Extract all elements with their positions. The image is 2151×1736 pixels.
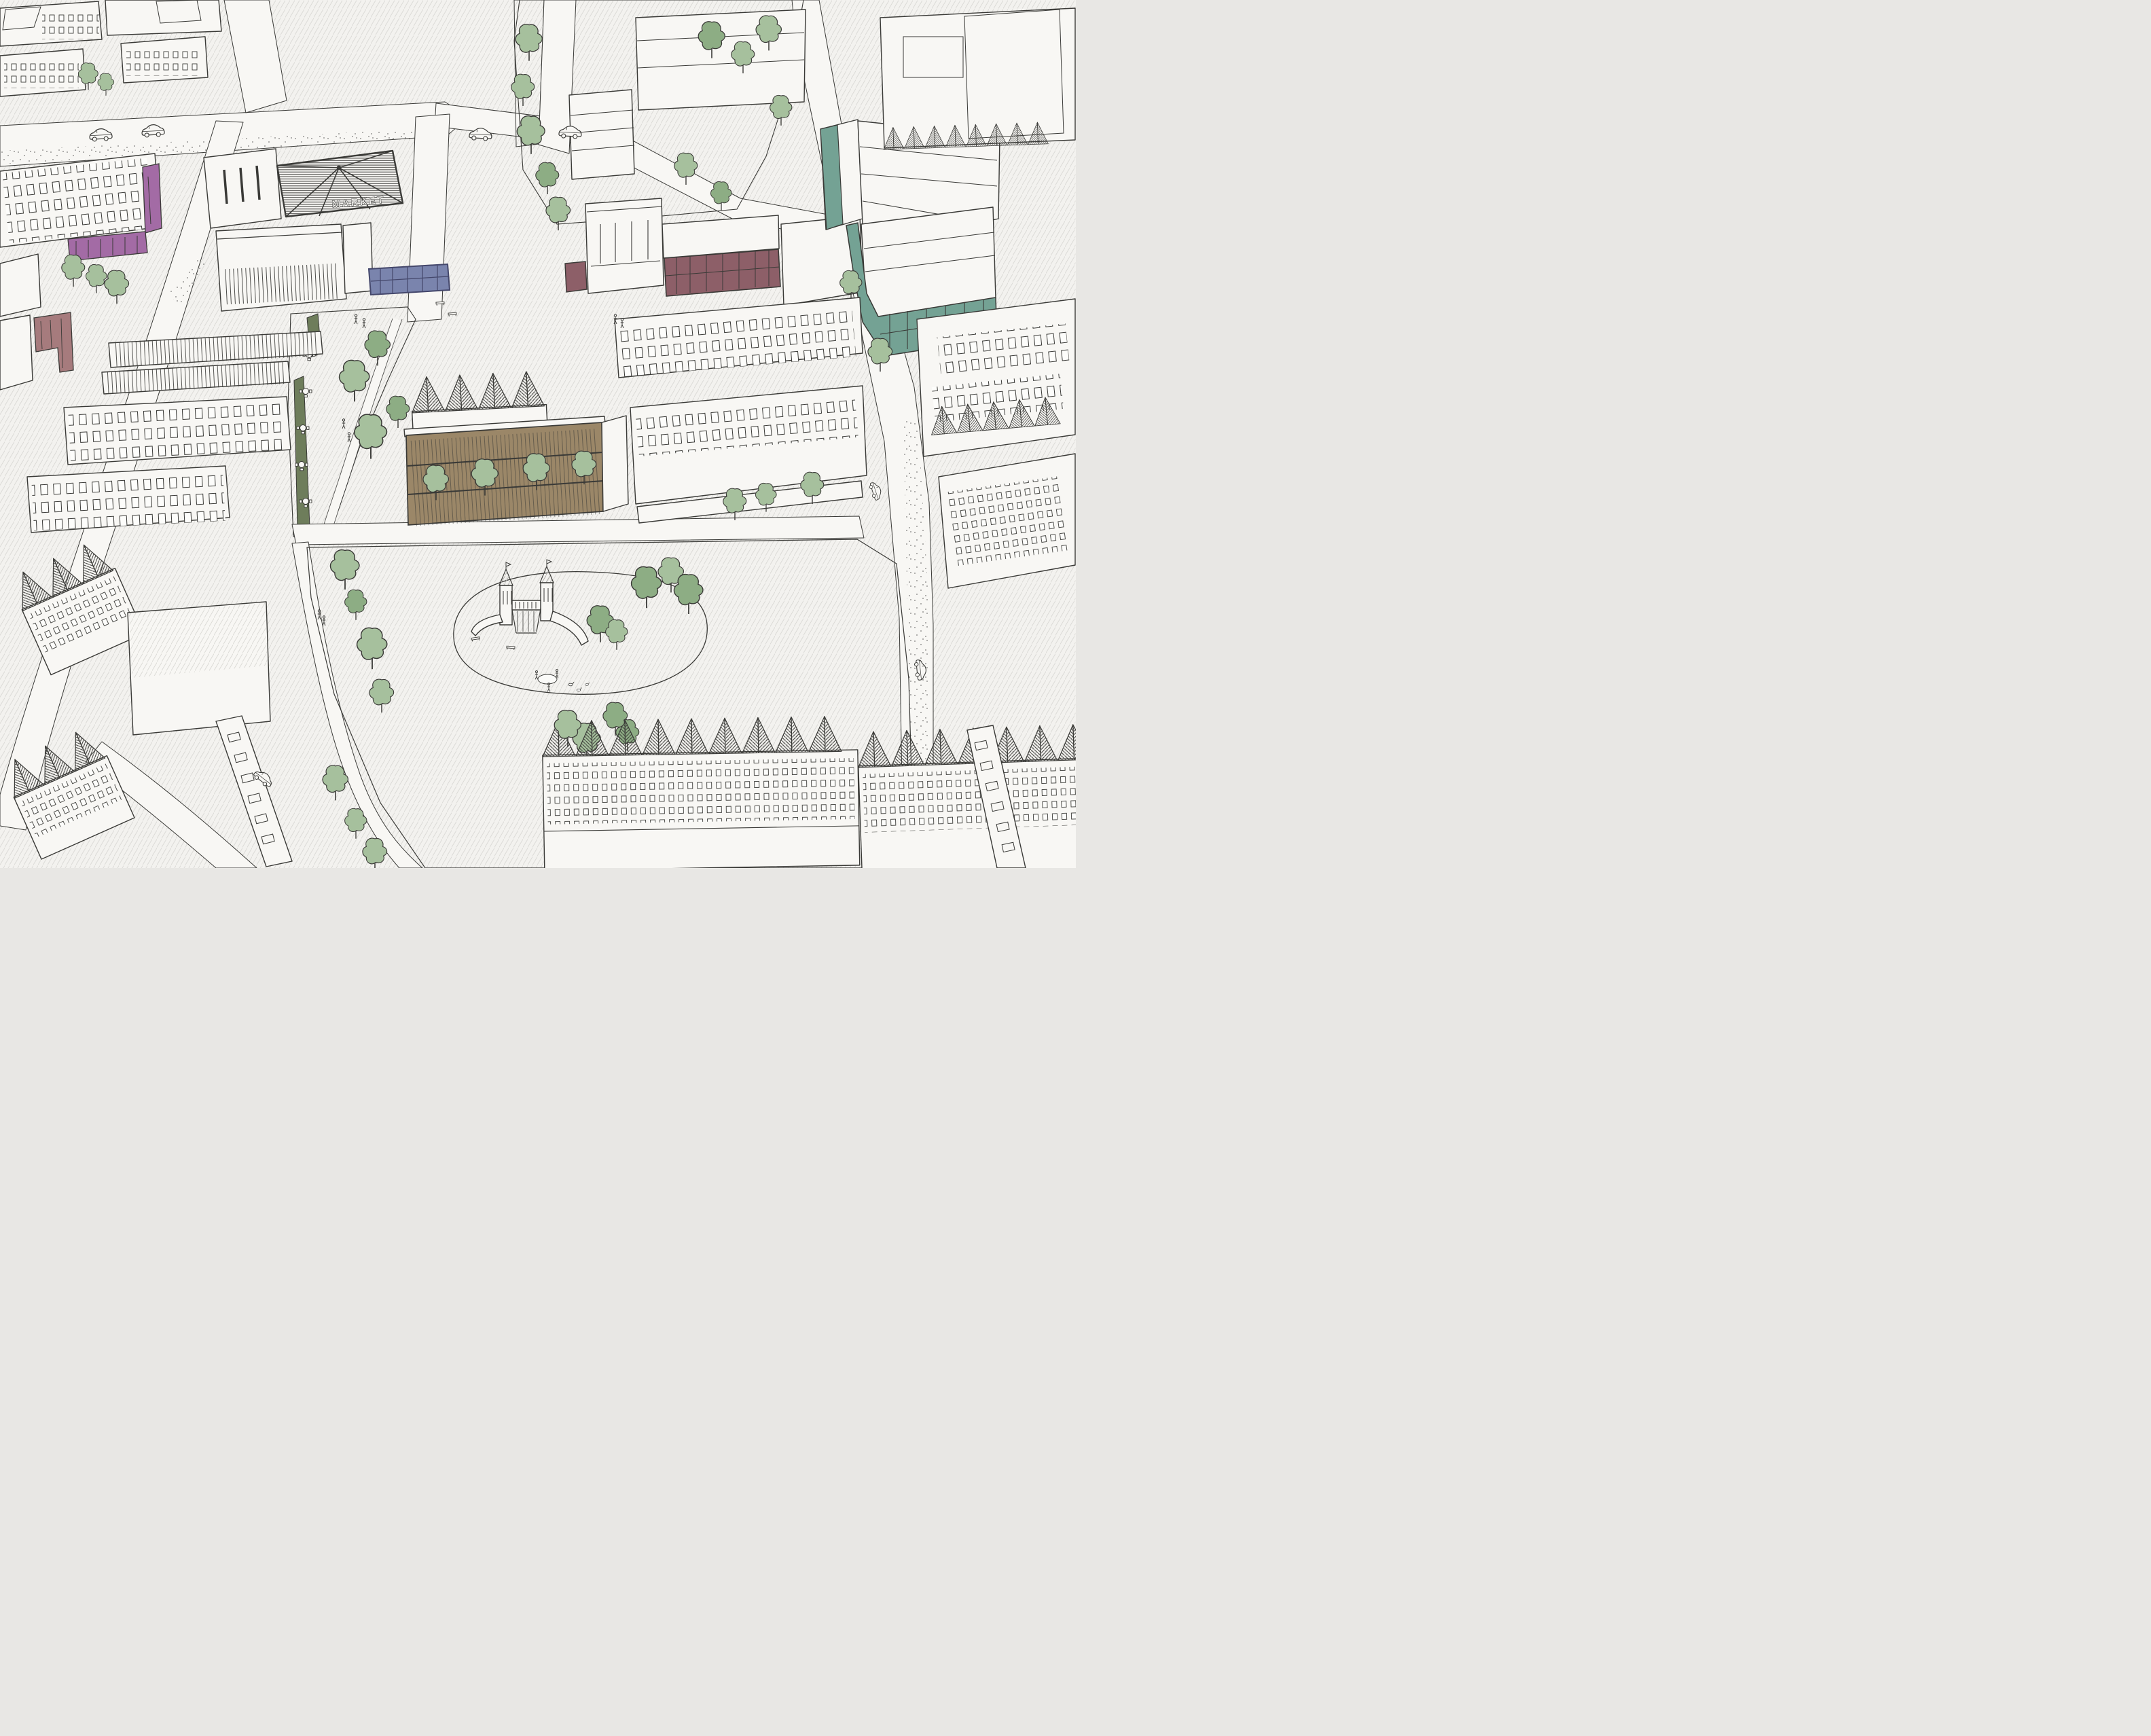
purple-arm-vertical: [143, 164, 162, 233]
market-pavilion: [216, 224, 346, 311]
white-gable-front: [585, 198, 664, 293]
sketch-canvas: MARKET: [0, 0, 1076, 868]
northeast-blocks: [880, 8, 1075, 149]
east-center-blocks: [615, 297, 867, 523]
masterplan-illustration: MARKET: [0, 0, 1076, 868]
market-tower: [343, 223, 373, 293]
blue-ground-floor-pavilion: [369, 264, 450, 295]
